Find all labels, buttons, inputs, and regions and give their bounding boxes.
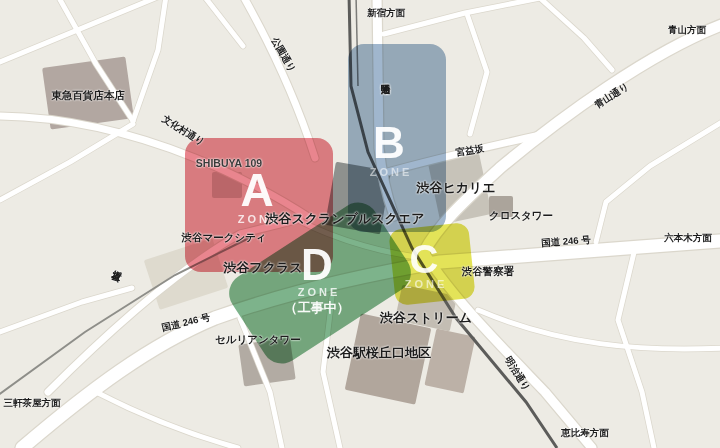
landmark-hikarie: 渋谷ヒカリエ xyxy=(416,179,495,197)
zone-b-word: ZONE xyxy=(370,167,413,178)
landmark-scramble-square: 渋谷スクランブルスクエア xyxy=(265,210,424,228)
zone-c-letter: C xyxy=(410,239,439,279)
landmark-fukuras: 渋谷フクラス xyxy=(223,259,302,277)
zone-b-letter: B xyxy=(373,121,405,165)
landmark-cerulean-tower: セルリアンタワー xyxy=(215,333,301,347)
zone-d-construction-note: （工事中） xyxy=(285,299,350,317)
landmark-tokyu-department-store: 東急百貨店本店 xyxy=(51,89,125,103)
landmark-shibuya109: SHIBUYA 109 xyxy=(196,157,262,169)
landmark-cross-tower: クロスタワー xyxy=(489,209,553,223)
zone-d-letter: D xyxy=(301,243,333,287)
direction-roppongi: 六本木方面 xyxy=(664,232,712,245)
street-meijidori-north: 明治通り xyxy=(379,77,392,88)
zone-d-word: ZONE xyxy=(298,287,341,298)
landmark-shibuya-police-station: 渋谷警察署 xyxy=(462,265,515,279)
landmark-stream: 渋谷ストリーム xyxy=(380,309,472,327)
landmark-sakuragaoka-district: 渋谷駅桜丘口地区 xyxy=(327,344,431,362)
landmark-mark-city: 渋谷マークシティ xyxy=(181,231,266,245)
direction-sangenjaya: 三軒茶屋方面 xyxy=(4,397,61,410)
direction-ebisu: 恵比寿方面 xyxy=(561,427,609,440)
direction-aoyama: 青山方面 xyxy=(668,24,706,37)
direction-shinjuku: 新宿方面 xyxy=(367,7,405,20)
zone-a-letter: A xyxy=(240,167,273,213)
zone-c-word: ZONE xyxy=(405,279,448,290)
shibuya-area-map: A ZONE B ZONE C ZONE D ZONE （工事中） 新宿方面 青… xyxy=(0,0,720,448)
